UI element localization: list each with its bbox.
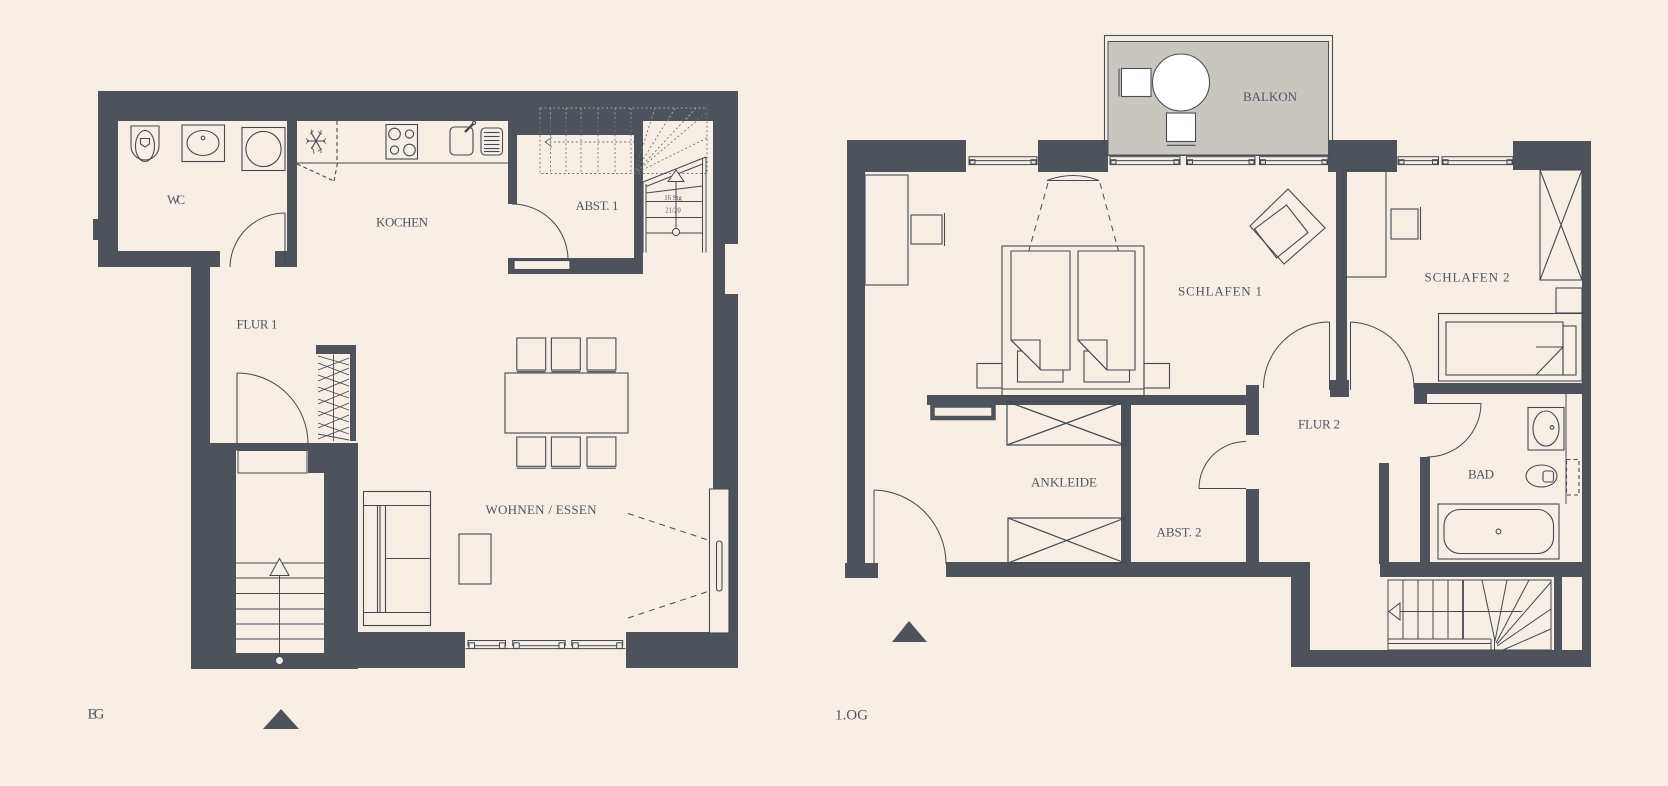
svg-text:FLUR 2: FLUR 2 [1298,417,1342,432]
svg-text:21/20: 21/20 [665,208,681,215]
svg-text:KOCHEN: KOCHEN [376,215,430,230]
svg-text:WC: WC [167,192,187,207]
svg-text:FLUR 1: FLUR 1 [237,317,280,332]
svg-text:ANKLEIDE: ANKLEIDE [1031,475,1099,490]
svg-text:BALKON: BALKON [1243,89,1299,104]
svg-text:1.OG: 1.OG [835,708,869,724]
svg-text:ABST. 2: ABST. 2 [1157,525,1204,540]
svg-text:ABST. 1: ABST. 1 [576,198,621,213]
svg-text:EG: EG [88,707,106,723]
svg-text:SCHLAFEN 1: SCHLAFEN 1 [1178,284,1264,299]
svg-text:SCHLAFEN 2: SCHLAFEN 2 [1425,270,1512,285]
svg-text:BAD: BAD [1468,467,1496,482]
svg-text:WOHNEN / ESSEN: WOHNEN / ESSEN [486,502,599,517]
svg-text:16 Stg: 16 Stg [664,195,682,202]
